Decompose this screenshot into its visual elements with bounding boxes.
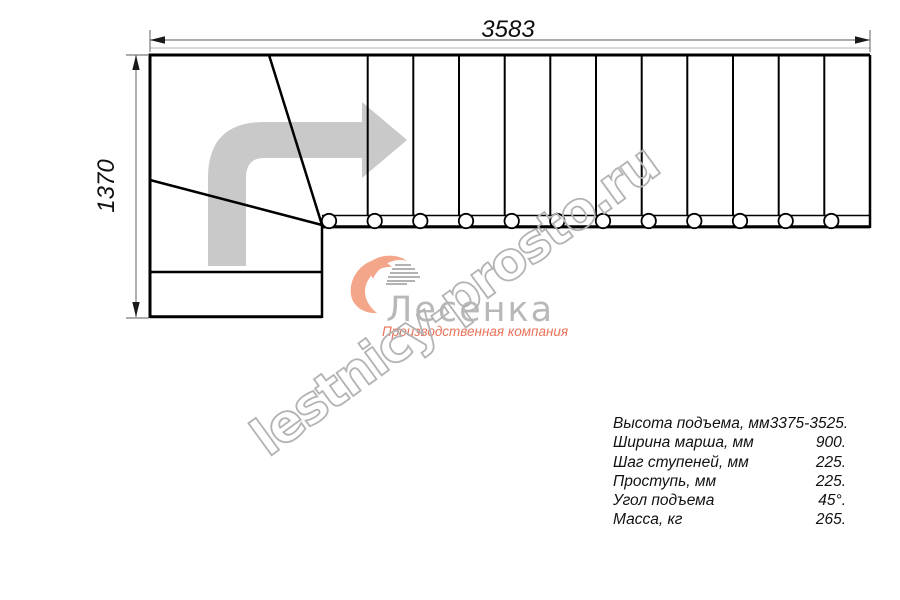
spec-row: Проступь, мм 225. [613,472,846,491]
spec-row: Ширина марша, мм 900. [613,433,846,452]
staircase-outline [149,55,871,318]
spec-label: Проступь, мм [613,472,716,491]
tread-lines [368,55,825,216]
dimension-width-label: 3583 [481,16,535,43]
spec-label: Шаг ступеней, мм [613,453,749,472]
specs-table: Высота подъема, мм 3375-3525. Ширина мар… [613,414,846,530]
spec-row: Масса, кг 265. [613,510,846,529]
direction-arrow [208,102,407,266]
logo-tagline: Производственная компания [382,324,568,339]
stair-plan-page: 3583 1370 Лесенка Производственная компа… [0,0,900,600]
spec-label: Угол подъема [613,491,714,510]
spec-row: Шаг ступеней, мм 225. [613,453,846,472]
spec-row: Угол подъема 45°. [613,491,846,510]
spec-value: 900. [816,433,846,452]
spec-value: 45°. [818,491,846,510]
spec-label: Ширина марша, мм [613,433,754,452]
dimension-height-label: 1370 [93,159,120,213]
spec-value: 3375-3525. [770,414,848,433]
spec-label: Масса, кг [613,510,682,529]
spec-row: Высота подъема, мм 3375-3525. [613,414,846,433]
spec-value: 225. [816,472,846,491]
spec-value: 225. [816,453,846,472]
spec-label: Высота подъема, мм [613,414,770,433]
dimension-height: 1370 [93,55,149,318]
dimension-width: 3583 [150,16,870,52]
spec-value: 265. [816,510,846,529]
